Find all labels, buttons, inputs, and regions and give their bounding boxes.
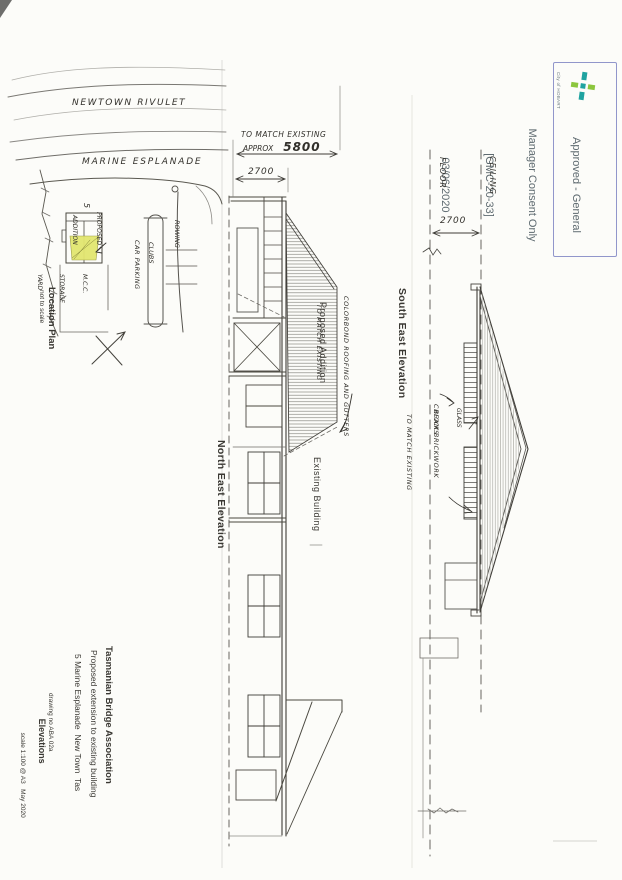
- door: [236, 770, 276, 800]
- title-block-address: 5 Marine Esplanade New Town Tas: [73, 654, 83, 791]
- porch: [420, 563, 477, 838]
- ne-elevation-drawing: [229, 86, 352, 846]
- roof-note: COLORBOND ROOFING AND GUTTERS TO MATCH E…: [296, 296, 368, 437]
- ground-mark: [418, 808, 466, 813]
- hip-roof: [480, 287, 528, 612]
- title-block-drawing-no: drawing no ABA 02a: [47, 693, 54, 752]
- river-label: NEWTOWN RIVULET: [72, 98, 186, 108]
- se-elevation-title: South East Elevation: [396, 288, 408, 398]
- title-block-org: Tasmanian Bridge Association: [103, 646, 114, 784]
- dim-note-line1: TO MATCH EXISTING: [241, 130, 326, 139]
- scanned-drawing-page: City of HOBART Approved - General Manage…: [0, 0, 622, 880]
- stamp-line: Manager Consent Only: [525, 118, 540, 252]
- location-plan-title: Location Plan: [46, 287, 57, 349]
- se-elevation-drawing: [418, 150, 528, 856]
- title-block-sheet-row: Elevations scale 1:100 @ A3 May 2020: [0, 692, 70, 818]
- dim-note-line2: APPROX 5800: [243, 140, 321, 154]
- stamp-org-label: City of HOBART: [556, 72, 561, 109]
- road-label: MARINE ESPLANADE: [82, 157, 202, 167]
- existing-building-label: Existing Building: [312, 457, 322, 532]
- site-number-label: 5: [82, 203, 91, 208]
- clerestory-windows: [233, 197, 286, 318]
- rowing-clubs-label: ROWING CLUBS: [130, 220, 198, 264]
- title-block-project: Proposed extension to existing building: [89, 650, 99, 797]
- braced-panel: [234, 323, 280, 371]
- ne-dim-2700: 2700: [248, 167, 274, 177]
- opening: [246, 385, 282, 427]
- location-plan-subtitle: not to scale: [38, 290, 45, 323]
- stamp-line: Approved - General: [569, 118, 584, 252]
- se-dim-2700: 2700: [440, 216, 466, 226]
- north-arrow: [92, 332, 125, 365]
- storage-yard-label: M.C.C. STORAGE YARD: [21, 274, 104, 303]
- ne-elevation-title: North East Elevation: [215, 440, 227, 549]
- facade-line: [282, 197, 286, 836]
- wall-line: [477, 287, 480, 613]
- brickwork-note: CREAM BRICKWORK TO MATCH EXISTING: [386, 404, 458, 491]
- floor-label: FLOOR: [438, 157, 447, 189]
- ceiling-label: CEILING: [488, 156, 497, 195]
- plan-proposed-addition-note: PROPOSED ADDITION: [54, 212, 118, 245]
- existing-windows: [248, 452, 280, 757]
